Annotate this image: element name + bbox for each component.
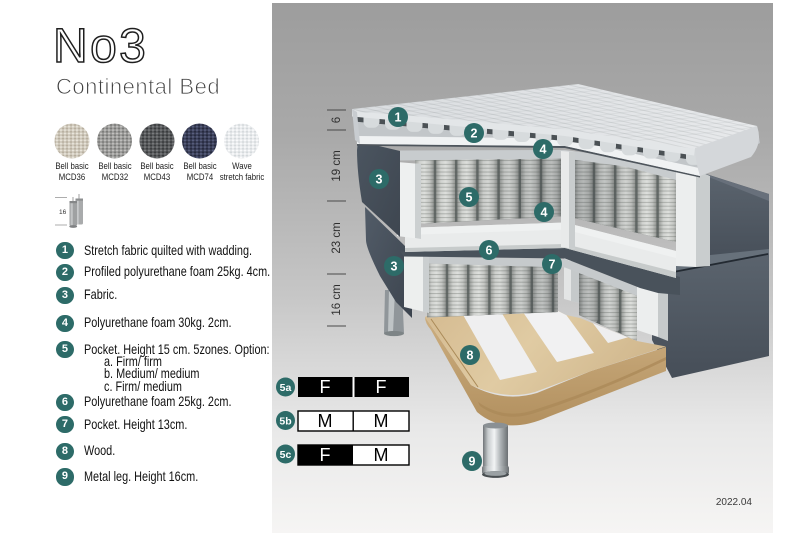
svg-text:M: M bbox=[374, 445, 389, 465]
svg-text:4: 4 bbox=[541, 206, 548, 220]
svg-text:M: M bbox=[374, 411, 389, 431]
svg-text:19 cm: 19 cm bbox=[331, 150, 343, 181]
svg-text:M: M bbox=[318, 411, 333, 431]
svg-text:3: 3 bbox=[391, 260, 398, 274]
svg-text:5b: 5b bbox=[279, 416, 291, 428]
svg-text:F: F bbox=[320, 445, 331, 465]
svg-text:6: 6 bbox=[486, 244, 493, 258]
svg-text:16 cm: 16 cm bbox=[331, 284, 343, 315]
svg-text:23 cm: 23 cm bbox=[331, 222, 343, 253]
svg-text:F: F bbox=[376, 377, 387, 397]
svg-text:5a: 5a bbox=[280, 382, 292, 394]
svg-text:8: 8 bbox=[467, 349, 474, 363]
svg-text:3: 3 bbox=[376, 173, 383, 187]
svg-text:4: 4 bbox=[540, 143, 547, 157]
svg-text:9: 9 bbox=[469, 455, 476, 469]
svg-text:F: F bbox=[320, 377, 331, 397]
svg-text:6: 6 bbox=[331, 117, 343, 123]
svg-text:1: 1 bbox=[395, 111, 402, 125]
svg-text:7: 7 bbox=[549, 258, 556, 272]
svg-text:5c: 5c bbox=[280, 449, 292, 461]
svg-text:5: 5 bbox=[466, 191, 473, 205]
svg-text:2022.04: 2022.04 bbox=[716, 497, 753, 508]
svg-text:2: 2 bbox=[471, 127, 478, 141]
